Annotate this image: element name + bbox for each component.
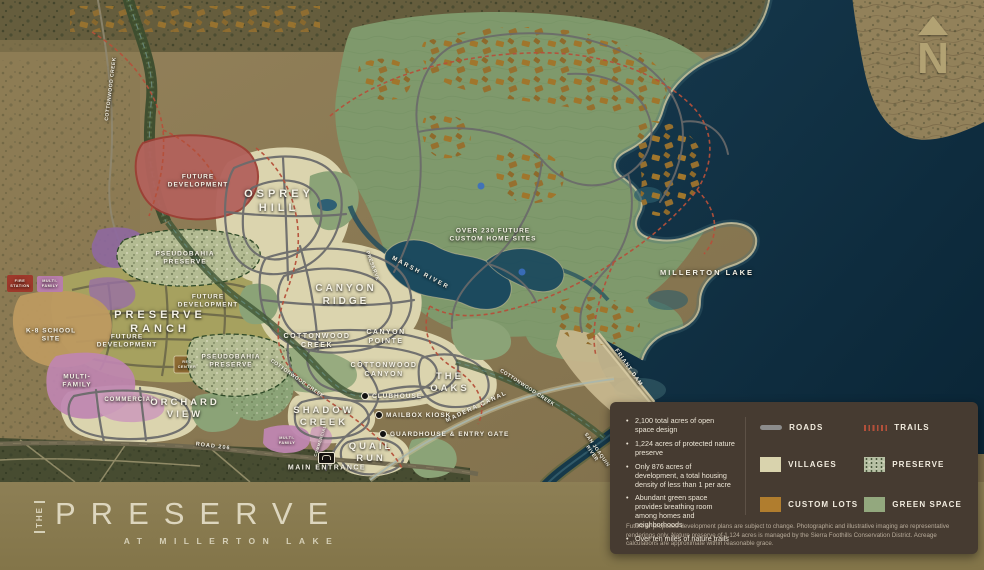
roads-swatch (760, 425, 782, 430)
legend-label: TRAILS (894, 423, 930, 432)
trails-swatch (864, 425, 887, 431)
brochure-site-map: FUTURE DEVELOPMENTOSPREY HILLPSEUDOBAHIA… (0, 0, 984, 570)
logo-tagline: AT MILLERTON LAKE (55, 536, 339, 546)
legend-item-custom-lots: CUSTOM LOTS (760, 497, 858, 512)
green-space-swatch (864, 497, 885, 512)
compass-north-letter: N (907, 37, 959, 81)
logo-the-word: THE (35, 506, 44, 528)
info-panel: 2,100 total acres of open space design1,… (610, 402, 978, 554)
compass-rose: N (907, 16, 959, 81)
info-panel-top: 2,100 total acres of open space design1,… (626, 415, 962, 519)
fact-bullet: Abundant green space provides breathing … (626, 494, 735, 530)
legend-label: ROADS (789, 423, 823, 432)
fact-bullet: 2,100 total acres of open space design (626, 417, 735, 435)
panel-divider (745, 417, 746, 515)
legend-item-roads: ROADS (760, 423, 858, 432)
legend-label: CUSTOM LOTS (788, 500, 858, 509)
preserve-swatch (864, 457, 885, 472)
entry-gate-icon (318, 452, 335, 464)
map-legend: ROADSTRAILSVILLAGESPRESERVECUSTOM LOTSGR… (760, 415, 962, 519)
legend-label: VILLAGES (788, 460, 837, 469)
villages-swatch (760, 457, 781, 472)
logo-rule-bottom (34, 531, 45, 533)
fact-bullet: Only 876 acres of development, a total h… (626, 463, 735, 490)
logo-main: PRESERVE AT MILLERTON LAKE (55, 498, 343, 546)
legend-item-villages: VILLAGES (760, 457, 858, 472)
custom-lots-swatch (760, 497, 781, 512)
logo-name: PRESERVE (55, 498, 343, 529)
legend-label: PRESERVE (892, 460, 944, 469)
logo-rule-top (34, 501, 45, 503)
fact-bullet: Over ten miles of nature trails (626, 535, 735, 544)
legend-label: GREEN SPACE (892, 500, 962, 509)
north-arrow-icon (918, 16, 948, 35)
legend-item-green-space: GREEN SPACE (864, 497, 962, 512)
fact-bullet: 1,224 acres of protected nature preserve (626, 440, 735, 458)
brand-logo: THE PRESERVE AT MILLERTON LAKE (34, 498, 343, 546)
fact-bullet-list: 2,100 total acres of open space design1,… (626, 417, 735, 519)
legend-item-preserve: PRESERVE (864, 457, 962, 472)
logo-the-block: THE (34, 501, 45, 533)
legend-item-trails: TRAILS (864, 423, 962, 432)
